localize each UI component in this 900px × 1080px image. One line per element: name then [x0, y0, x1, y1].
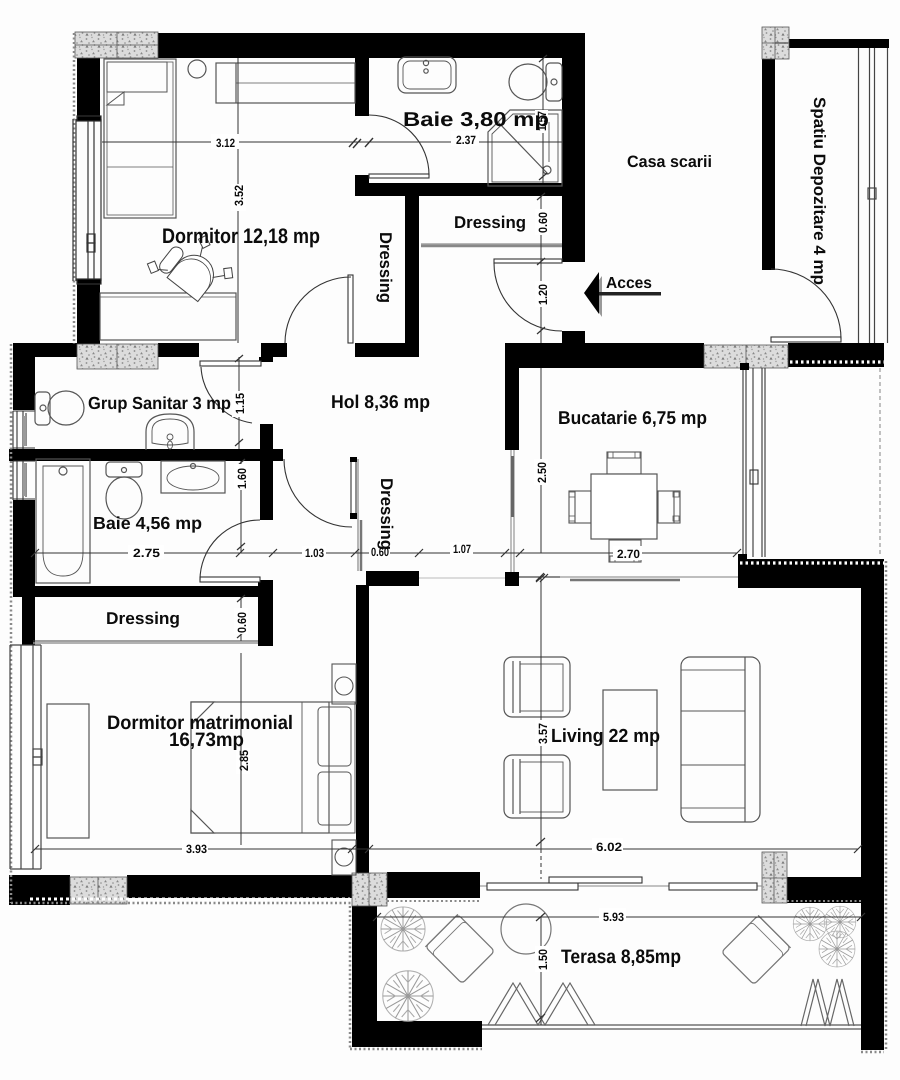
svg-text:Grup Sanitar 3 mp: Grup Sanitar 3 mp — [88, 393, 231, 413]
svg-text:2.75: 2.75 — [133, 546, 160, 560]
svg-text:Dressing: Dressing — [376, 232, 395, 303]
svg-text:1.60: 1.60 — [235, 468, 249, 489]
svg-text:Dressing: Dressing — [454, 213, 526, 232]
svg-text:Casa scarii: Casa scarii — [627, 153, 712, 171]
svg-text:3.93: 3.93 — [186, 842, 207, 856]
svg-text:3.52: 3.52 — [232, 185, 246, 206]
svg-text:16,73mp: 16,73mp — [169, 729, 244, 751]
svg-text:2.70: 2.70 — [617, 547, 640, 561]
svg-text:1.07: 1.07 — [453, 542, 471, 556]
svg-text:Dressing: Dressing — [377, 478, 396, 550]
svg-text:3.57: 3.57 — [536, 723, 550, 744]
svg-text:Dressing: Dressing — [106, 609, 180, 628]
svg-text:6.02: 6.02 — [596, 840, 622, 854]
svg-text:0.60: 0.60 — [536, 212, 550, 233]
svg-text:1.15: 1.15 — [233, 393, 247, 414]
svg-text:Dormitor 12,18 mp: Dormitor 12,18 mp — [162, 225, 320, 248]
svg-text:Living 22 mp: Living 22 mp — [551, 726, 660, 747]
svg-text:5.93: 5.93 — [603, 910, 624, 924]
svg-text:0.60: 0.60 — [235, 612, 249, 633]
svg-text:Bucatarie 6,75 mp: Bucatarie 6,75 mp — [558, 407, 707, 428]
svg-text:Baie 3,80 mp: Baie 3,80 mp — [403, 109, 549, 131]
svg-text:Acces: Acces — [606, 275, 652, 292]
svg-text:2.37: 2.37 — [456, 133, 476, 147]
svg-text:3.12: 3.12 — [216, 136, 235, 150]
svg-text:2.50: 2.50 — [535, 462, 549, 483]
svg-text:Spatiu Depozitare 4 mp: Spatiu Depozitare 4 mp — [810, 97, 828, 285]
svg-text:2.85: 2.85 — [237, 750, 251, 771]
svg-text:Hol 8,36 mp: Hol 8,36 mp — [331, 391, 430, 412]
svg-text:1.50: 1.50 — [536, 949, 550, 970]
svg-text:1.03: 1.03 — [305, 546, 324, 560]
svg-text:Terasa 8,85mp: Terasa 8,85mp — [561, 946, 681, 968]
svg-text:1.20: 1.20 — [536, 284, 550, 305]
svg-text:Baie 4,56 mp: Baie 4,56 mp — [93, 513, 202, 533]
